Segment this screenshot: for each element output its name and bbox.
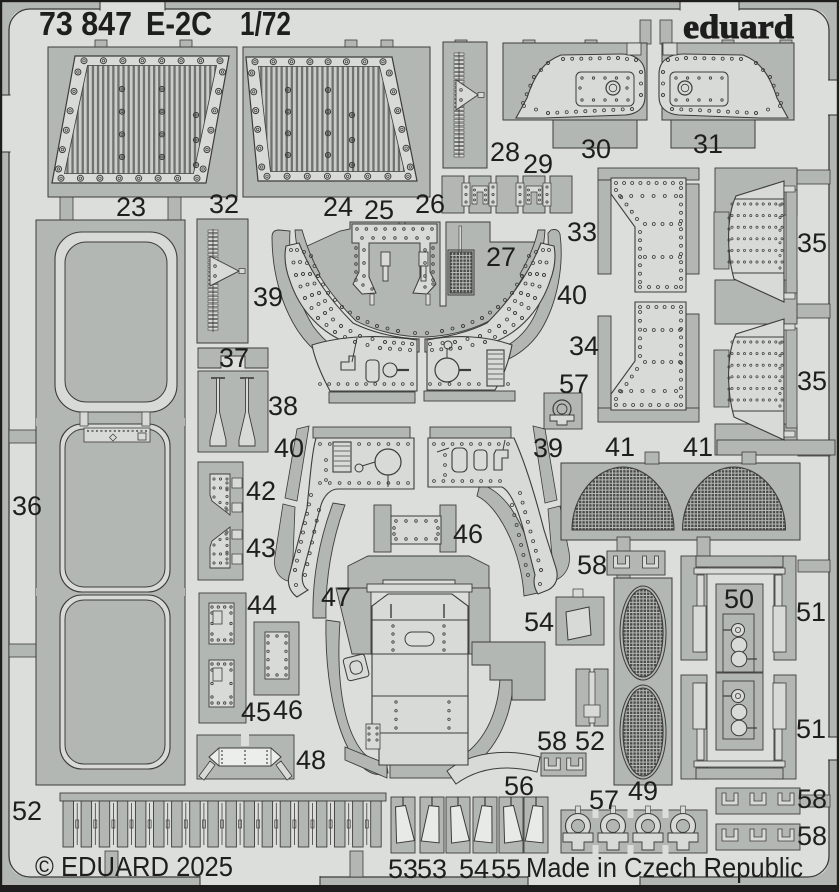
svg-text:39: 39 bbox=[253, 282, 283, 312]
svg-text:73 847: 73 847 bbox=[39, 5, 132, 42]
svg-text:48: 48 bbox=[296, 745, 326, 775]
svg-text:24: 24 bbox=[323, 192, 353, 222]
svg-text:36: 36 bbox=[12, 491, 42, 521]
svg-text:51: 51 bbox=[796, 597, 826, 627]
svg-text:49: 49 bbox=[628, 776, 658, 806]
svg-text:46: 46 bbox=[453, 519, 483, 549]
svg-text:44: 44 bbox=[247, 590, 277, 620]
svg-text:56: 56 bbox=[504, 771, 534, 801]
svg-text:57: 57 bbox=[559, 369, 589, 399]
svg-text:51: 51 bbox=[796, 714, 826, 744]
svg-text:© EDUARD 2025: © EDUARD 2025 bbox=[35, 851, 233, 882]
svg-text:Made in Czech Republic: Made in Czech Republic bbox=[526, 852, 803, 883]
svg-text:38: 38 bbox=[268, 391, 298, 421]
svg-text:31: 31 bbox=[693, 129, 723, 159]
svg-text:58: 58 bbox=[537, 726, 567, 756]
svg-text:50: 50 bbox=[724, 584, 754, 614]
svg-text:58: 58 bbox=[577, 550, 607, 580]
svg-text:35: 35 bbox=[797, 366, 827, 396]
svg-text:47: 47 bbox=[321, 582, 351, 612]
svg-text:1/72: 1/72 bbox=[240, 5, 291, 42]
svg-text:46: 46 bbox=[273, 695, 303, 725]
svg-text:35: 35 bbox=[797, 228, 827, 258]
svg-text:53: 53 bbox=[417, 854, 447, 884]
svg-text:39: 39 bbox=[533, 433, 563, 463]
svg-text:37: 37 bbox=[219, 343, 249, 373]
svg-text:29: 29 bbox=[523, 149, 553, 179]
svg-text:58: 58 bbox=[797, 821, 827, 851]
svg-text:eduard: eduard bbox=[683, 9, 794, 46]
svg-text:54: 54 bbox=[524, 607, 554, 637]
svg-text:52: 52 bbox=[12, 796, 42, 826]
svg-text:40: 40 bbox=[274, 433, 304, 463]
svg-text:34: 34 bbox=[569, 331, 599, 361]
svg-text:32: 32 bbox=[209, 189, 239, 219]
svg-text:28: 28 bbox=[490, 137, 520, 167]
svg-text:53: 53 bbox=[388, 854, 418, 884]
svg-text:33: 33 bbox=[567, 217, 597, 247]
svg-text:41: 41 bbox=[605, 432, 635, 462]
svg-text:58: 58 bbox=[797, 784, 827, 814]
svg-text:45: 45 bbox=[241, 697, 271, 727]
svg-text:26: 26 bbox=[415, 189, 445, 219]
svg-text:27: 27 bbox=[486, 242, 516, 272]
svg-text:42: 42 bbox=[246, 476, 276, 506]
svg-text:41: 41 bbox=[683, 432, 713, 462]
svg-text:30: 30 bbox=[581, 134, 611, 164]
svg-text:40: 40 bbox=[557, 280, 587, 310]
svg-text:43: 43 bbox=[246, 533, 276, 563]
svg-text:52: 52 bbox=[575, 726, 605, 756]
svg-text:57: 57 bbox=[589, 785, 619, 815]
svg-text:25: 25 bbox=[364, 195, 394, 225]
svg-text:54: 54 bbox=[459, 854, 489, 884]
svg-text:55: 55 bbox=[491, 854, 521, 884]
svg-text:E-2C: E-2C bbox=[146, 5, 212, 42]
svg-text:23: 23 bbox=[116, 192, 146, 222]
